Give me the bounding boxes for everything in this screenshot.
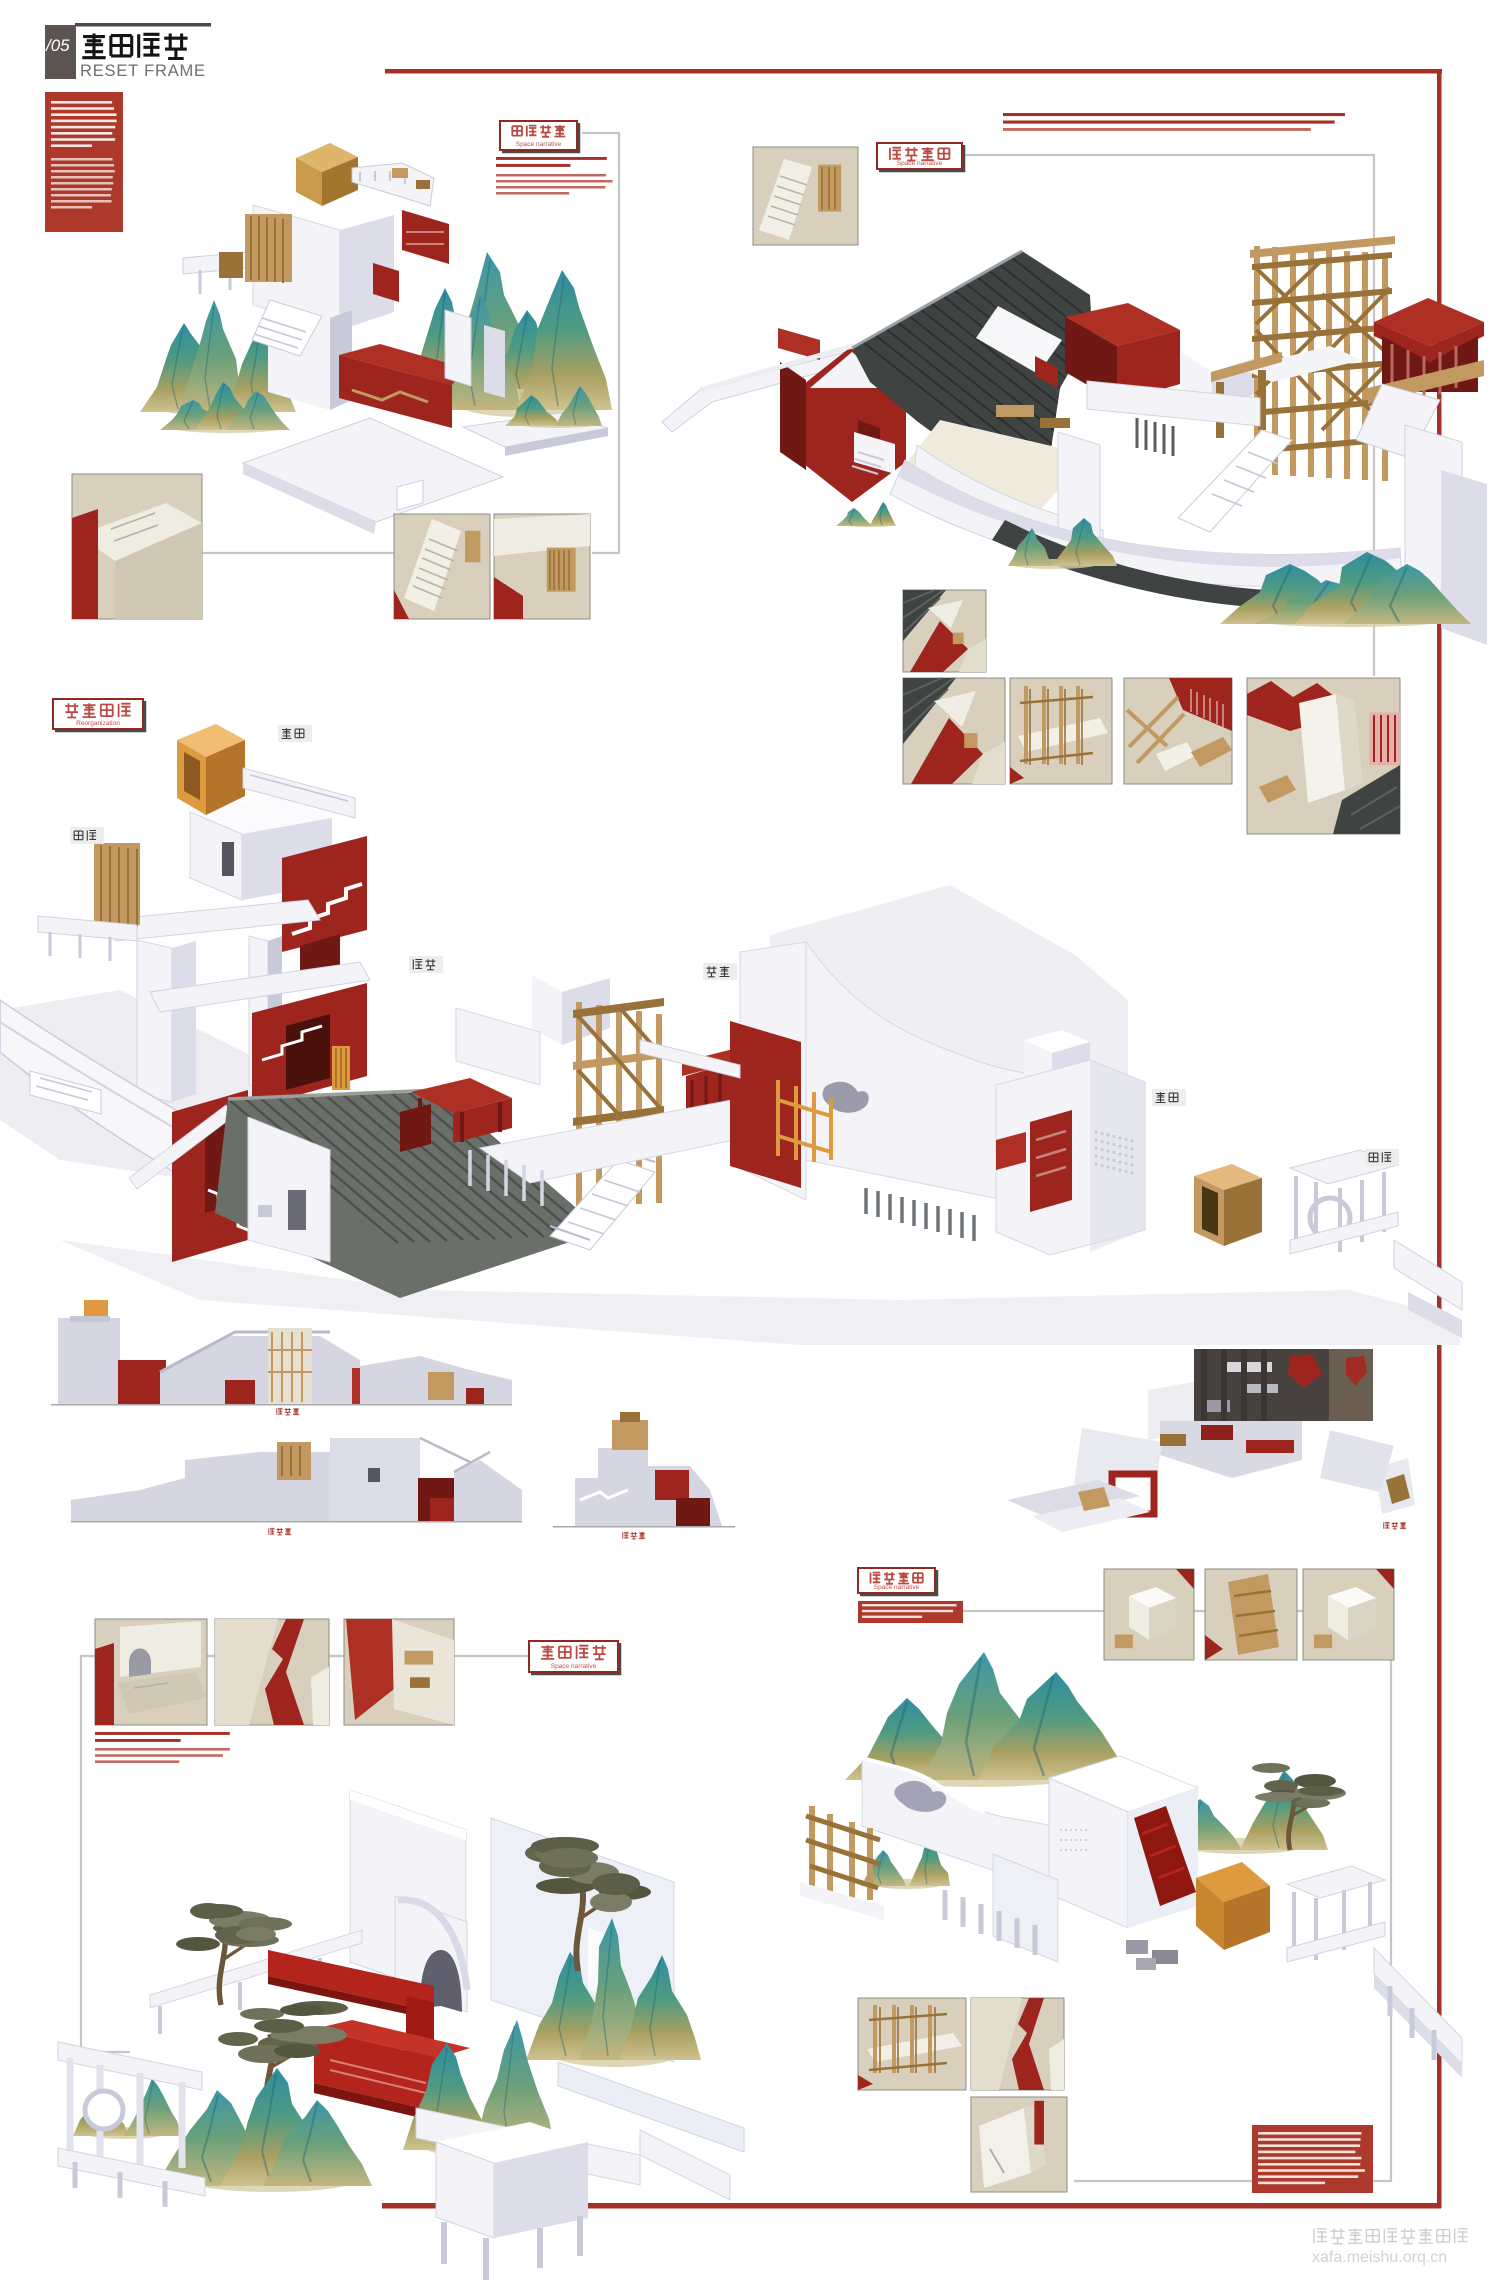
svg-text:Space narrative: Space narrative <box>551 1663 597 1670</box>
svg-text:Reorganization: Reorganization <box>76 720 120 727</box>
svg-text:Space narrative: Space narrative <box>516 141 562 148</box>
svg-text:xafa.meishu.orq.cn: xafa.meishu.orq.cn <box>1312 2249 1447 2266</box>
svg-text:RESET FRAME: RESET FRAME <box>80 62 206 80</box>
svg-text:/05: /05 <box>45 36 70 55</box>
svg-text:Space narrative: Space narrative <box>897 160 943 167</box>
svg-text:Space narrative: Space narrative <box>874 1584 920 1591</box>
